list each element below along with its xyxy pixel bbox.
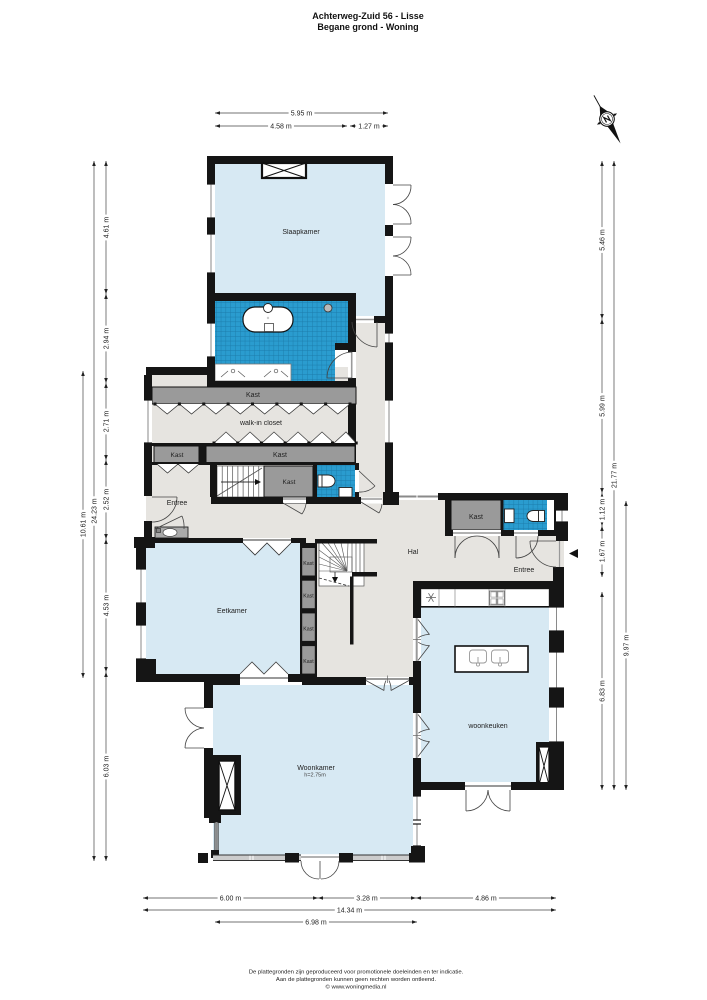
svg-text:Woonkamer: Woonkamer: [297, 765, 335, 772]
svg-text:Kast: Kast: [303, 594, 314, 600]
svg-text:2.52 m: 2.52 m: [103, 489, 110, 511]
svg-text:9.97 m: 9.97 m: [623, 635, 630, 657]
svg-text:6.83 m: 6.83 m: [599, 680, 606, 702]
svg-text:21.77 m: 21.77 m: [611, 463, 618, 488]
svg-text:1.12 m: 1.12 m: [599, 499, 606, 521]
svg-text:2.71 m: 2.71 m: [103, 411, 110, 433]
svg-text:14.34 m: 14.34 m: [337, 907, 362, 914]
svg-text:5.95 m: 5.95 m: [291, 110, 313, 117]
svg-text:1.67 m: 1.67 m: [599, 541, 606, 563]
svg-text:6.00 m: 6.00 m: [220, 895, 242, 902]
svg-text:De plattegronden zijn geproduc: De plattegronden zijn geproduceerd voor …: [249, 970, 464, 976]
svg-text:© www.woningmedia.nl: © www.woningmedia.nl: [326, 984, 387, 991]
svg-text:Eetkamer: Eetkamer: [217, 608, 248, 615]
svg-text:Aan de plattegronden kunnen ge: Aan de plattegronden kunnen geen rechten…: [276, 977, 437, 983]
svg-text:4.86 m: 4.86 m: [475, 895, 497, 902]
svg-text:Kast: Kast: [282, 479, 295, 486]
svg-text:Kast: Kast: [246, 392, 260, 399]
svg-text:5.99 m: 5.99 m: [599, 395, 606, 417]
svg-text:Hal: Hal: [408, 549, 419, 556]
svg-text:1.27 m: 1.27 m: [358, 123, 380, 130]
svg-text:4.53 m: 4.53 m: [103, 595, 110, 617]
svg-text:Achterweg-Zuid 56 - Lisse: Achterweg-Zuid 56 - Lisse: [312, 11, 424, 21]
svg-text:Entree: Entree: [514, 567, 535, 574]
svg-text:Kast: Kast: [303, 561, 314, 567]
svg-text:6.03 m: 6.03 m: [103, 756, 110, 778]
svg-text:5.46 m: 5.46 m: [599, 229, 606, 251]
svg-text:6.98 m: 6.98 m: [305, 919, 327, 926]
svg-text:Begane grond - Woning: Begane grond - Woning: [317, 22, 418, 32]
svg-text:Kast: Kast: [170, 452, 183, 459]
svg-text:4.61 m: 4.61 m: [103, 217, 110, 239]
svg-text:walk-in closet: walk-in closet: [239, 420, 282, 427]
svg-text:h=2.75m: h=2.75m: [304, 773, 326, 779]
svg-text:Kast: Kast: [303, 626, 314, 632]
svg-text:4.58 m: 4.58 m: [270, 123, 292, 130]
svg-text:Kast: Kast: [469, 514, 483, 521]
svg-text:woonkeuken: woonkeuken: [467, 723, 507, 730]
svg-text:Kast: Kast: [303, 659, 314, 665]
svg-text:3.28 m: 3.28 m: [356, 895, 378, 902]
svg-text:Slaapkamer: Slaapkamer: [282, 229, 320, 236]
svg-text:24.23 m: 24.23 m: [91, 498, 98, 523]
svg-text:2.94 m: 2.94 m: [103, 328, 110, 350]
svg-text:10.61 m: 10.61 m: [80, 512, 87, 537]
svg-text:Entree: Entree: [167, 500, 188, 507]
svg-text:Kast: Kast: [273, 452, 287, 459]
